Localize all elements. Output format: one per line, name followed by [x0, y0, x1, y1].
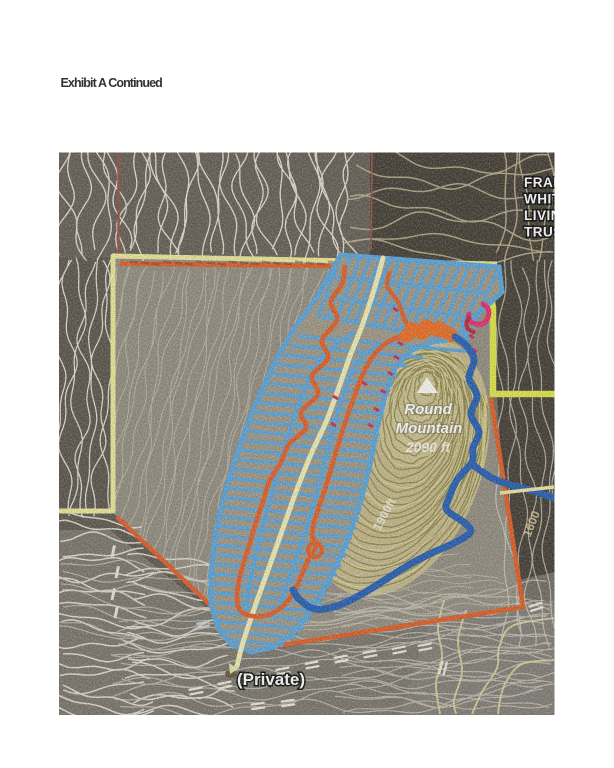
- svg-text:Exhibit A Continued: Exhibit A Continued: [61, 76, 163, 90]
